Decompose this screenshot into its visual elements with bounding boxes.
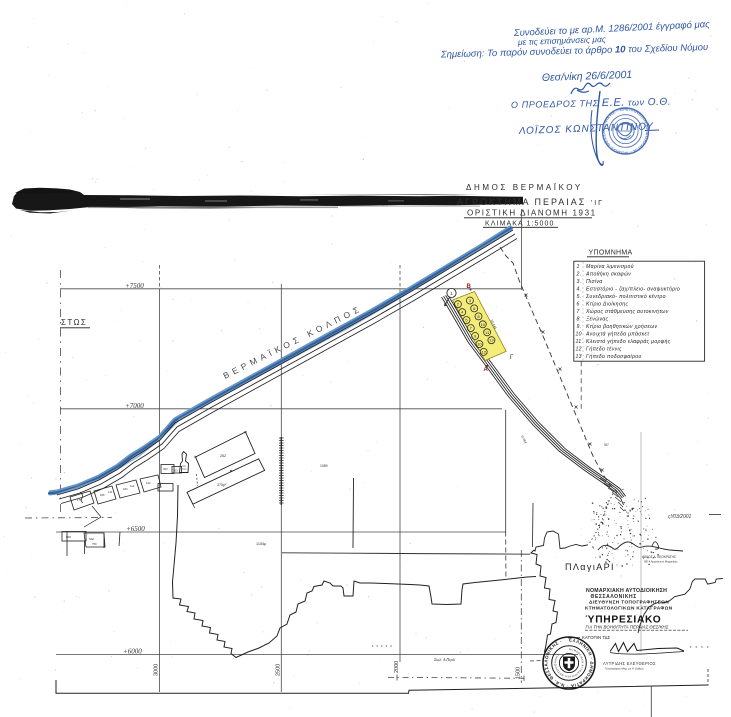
svg-text:ΑΓΡΟΚΤΗΜΑ ΠΕΡΑΙΑΣ 'ΙΓ: ΑΓΡΟΚΤΗΜΑ ΠΕΡΑΙΑΣ 'ΙΓ xyxy=(457,197,604,207)
svg-text:3.: 3. xyxy=(577,279,582,285)
svg-text:1154μ: 1154μ xyxy=(256,542,266,546)
svg-text:303: 303 xyxy=(163,467,168,471)
svg-text:8.: 8. xyxy=(577,317,582,323)
svg-text:Ξενώνας: Ξενώνας xyxy=(585,316,609,323)
svg-text:Κλειστό γήπεδο ελαφράς μορφής: Κλειστό γήπεδο ελαφράς μορφής xyxy=(586,338,671,345)
svg-text:+7500: +7500 xyxy=(125,282,144,290)
svg-text:ς!/03/2001: ς!/03/2001 xyxy=(668,514,692,520)
svg-text:759: 759 xyxy=(92,542,97,546)
svg-text:10: 10 xyxy=(576,332,582,338)
svg-text:Συνεδριακό- πολιτιστικό κέντρο: Συνεδριακό- πολιτιστικό κέντρο xyxy=(585,293,666,300)
svg-text:Εστιατόριο - ζαχ/πλειο- αναψυκ: Εστιατόριο - ζαχ/πλειο- αναψυκτήριο xyxy=(586,286,680,293)
svg-text:1500: 1500 xyxy=(516,667,522,679)
svg-text:Σωλ. Α.Περδ.: Σωλ. Α.Περδ. xyxy=(433,657,456,662)
svg-text:+7000: +7000 xyxy=(125,402,144,410)
svg-text:ΚΑΤΟΠΙΝ ΤΔΣ: ΚΑΤΟΠΙΝ ΤΔΣ xyxy=(582,635,611,640)
svg-text:2000: 2000 xyxy=(394,661,400,673)
svg-text:12: 12 xyxy=(481,349,486,354)
svg-text:ΠΛαγιΑΡΙ: ΠΛαγιΑΡΙ xyxy=(565,562,615,572)
svg-text:ΘΕ 4 Αρχιτέκτων Μηχανικός: ΘΕ 4 Αρχιτέκτων Μηχανικός xyxy=(644,560,678,564)
svg-text:Ν92: Ν92 xyxy=(89,537,94,541)
svg-text:5.: 5. xyxy=(577,294,582,300)
svg-text:ΣΤΩΣ: ΣΤΩΣ xyxy=(61,318,87,327)
svg-text:178: 178 xyxy=(77,498,82,502)
svg-text:1089: 1089 xyxy=(320,464,328,468)
svg-text:282: 282 xyxy=(220,454,226,458)
svg-text:Ανοιχτά γήπεδα μπάσκετ: Ανοιχτά γήπεδα μπάσκετ xyxy=(585,331,650,338)
svg-text:9.: 9. xyxy=(577,324,582,330)
svg-text:+6500: +6500 xyxy=(126,525,145,533)
svg-text:184: 184 xyxy=(123,487,128,491)
svg-text:Γήπεδο τέννις: Γήπεδο τέννις xyxy=(586,346,622,353)
svg-text:ΝΙΚΟΣ Δ. ΛΕΟΚΡΑΤΗΣ: ΝΙΚΟΣ Δ. ΛΕΟΚΡΑΤΗΣ xyxy=(643,555,676,559)
svg-text:ΟΡΙΣΤΙΚΗ ΔΙΑΝΟΜΗ 1931: ΟΡΙΣΤΙΚΗ ΔΙΑΝΟΜΗ 1931 xyxy=(467,209,597,218)
svg-text:Α: Α xyxy=(484,367,489,373)
svg-text:192: 192 xyxy=(146,481,151,485)
svg-text:Γήπεδο ποδοσφαίρου: Γήπεδο ποδοσφαίρου xyxy=(586,353,642,360)
svg-text:94ᵀ: 94ᵀ xyxy=(604,443,610,447)
svg-text:ΔΗΜΟΣ ΒΕΡΜΑΪΚΟΥ: ΔΗΜΟΣ ΒΕΡΜΑΪΚΟΥ xyxy=(466,183,583,192)
svg-text:13: 13 xyxy=(489,338,494,343)
svg-text:1: 1 xyxy=(577,264,580,270)
svg-text:ΚΛΙΜΑΚΑ 1:5000: ΚΛΙΜΑΚΑ 1:5000 xyxy=(485,221,555,228)
svg-text:Πισίνα: Πισίνα xyxy=(586,279,603,285)
svg-text:Χώρος στάθμευσης αυτοκινήτων: Χώρος στάθμευσης αυτοκινήτων xyxy=(585,308,669,315)
svg-text:6: 6 xyxy=(577,302,580,308)
svg-text:+6000: +6000 xyxy=(123,648,142,656)
svg-text:ΔΙΕΥΘΥΝΣΗ ΤΟΠΟΓΡΑΦΗΣΕΩΝ: ΔΙΕΥΘΥΝΣΗ ΤΟΠΟΓΡΑΦΗΣΕΩΝ xyxy=(589,600,669,605)
svg-text:10: 10 xyxy=(481,322,486,327)
svg-text:ΚΤΗΜΑΤΟΛΟΓΙΚΩΝ ΚΑΤΑΓΡΑΦΩΝ: ΚΤΗΜΑΤΟΛΟΓΙΚΩΝ ΚΑΤΑΓΡΑΦΩΝ xyxy=(585,606,673,611)
svg-text:Κτίριο Διοίκησης: Κτίριο Διοίκησης xyxy=(586,302,628,308)
svg-text:2.: 2. xyxy=(576,272,582,278)
svg-text:12: 12 xyxy=(576,347,582,353)
svg-text:Τοπογράφος Μηχ. με Α΄ βαθμό: Τοπογράφος Μηχ. με Α΄ βαθμό xyxy=(605,667,644,671)
svg-text:Αποθήκη σκαφών: Αποθήκη σκαφών xyxy=(585,271,631,278)
svg-text:186: 186 xyxy=(100,493,105,497)
svg-text:2500: 2500 xyxy=(276,664,282,676)
svg-text:11: 11 xyxy=(576,339,582,345)
svg-text:ΓΙΑ ΤΗΝ ΒΟΗΘ/ΤΗΤΑ ΠΕΡΑΙΑΣ ΘΕ: ΓΙΑ ΤΗΝ ΒΟΗΘ/ΤΗΤΑ ΠΕΡΑΙΑΣ ΘΕΣ/ΚΗΣ xyxy=(586,625,669,630)
svg-text:3000: 3000 xyxy=(154,664,160,676)
svg-text:141: 141 xyxy=(108,490,113,494)
svg-text:13: 13 xyxy=(576,354,582,360)
svg-text:ΛΥΤΡΙΔΗΣ ΕΛΕΥΘΕΡΙΟΣ: ΛΥΤΡΙΔΗΣ ΕΛΕΥΘΕΡΙΟΣ xyxy=(603,661,656,666)
svg-text:1κδ: 1κδ xyxy=(130,484,135,488)
svg-text:Μαρίνα λιμενισμού: Μαρίνα λιμενισμού xyxy=(586,263,634,270)
svg-text:ΥΠΟΜΝΗΜΑ: ΥΠΟΜΝΗΜΑ xyxy=(589,250,633,257)
svg-text:Ν93: Ν93 xyxy=(66,535,71,539)
svg-text:4.: 4. xyxy=(577,287,582,293)
svg-text:10: 10 xyxy=(477,342,482,347)
svg-text:375μ²: 375μ² xyxy=(217,483,227,487)
svg-text:Κτίριο βοηθητικών χρήσεων: Κτίριο βοηθητικών χρήσεων xyxy=(586,323,657,330)
